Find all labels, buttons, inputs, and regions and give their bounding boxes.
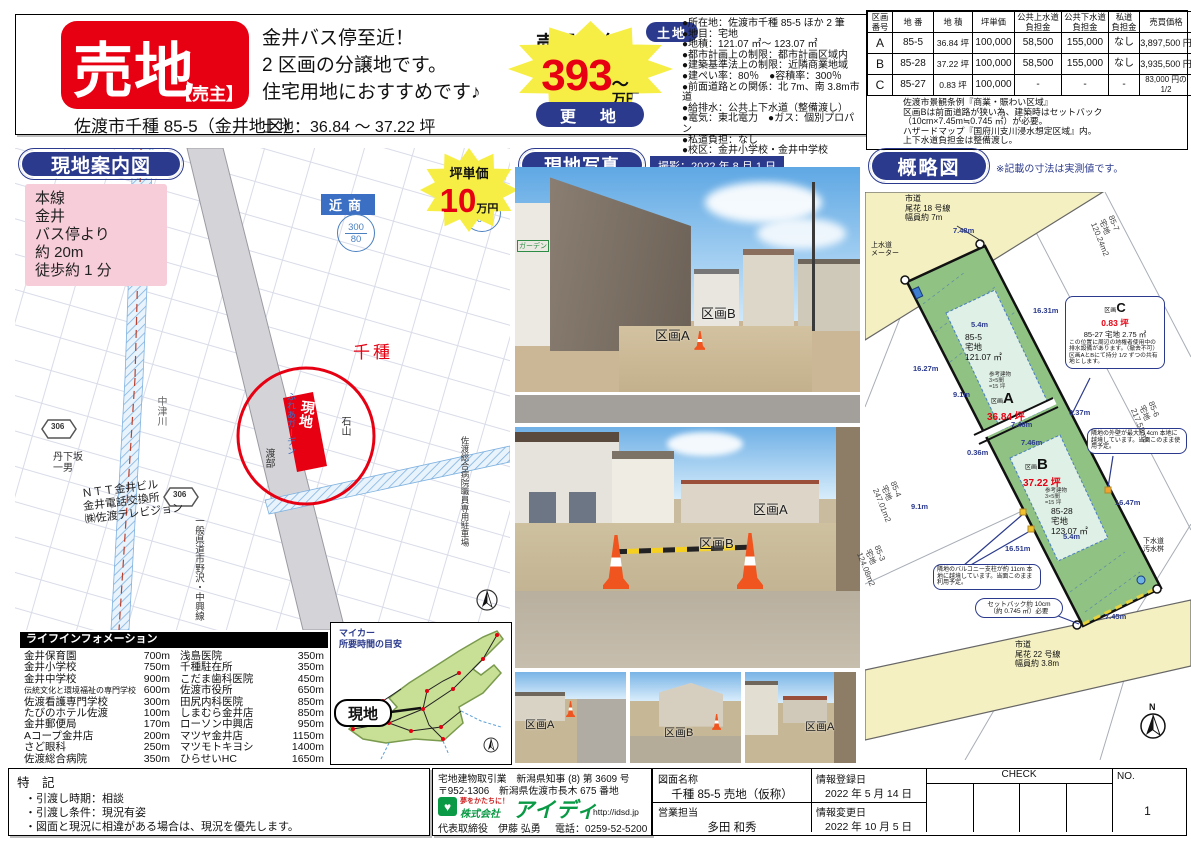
map-name-tange: 丹下坂 一男	[53, 452, 83, 474]
registered-date-cell: 情報登録日 2022 年 5 月 14 日	[811, 769, 927, 803]
cell: 36.84 坪	[934, 33, 973, 54]
cell: B	[868, 54, 893, 75]
document-info-table: 図面名称 千種 85-5 売地（仮称） 営業担当 多田 和秀 情報登録日 202…	[652, 768, 1187, 836]
cell: -	[1015, 75, 1062, 96]
special-notes-list: ・引渡し時期：相談 ・引渡し条件：現況有姿 ・図面と現況に相違がある場合は、現況…	[9, 791, 429, 834]
number-label: NO.	[1112, 769, 1183, 782]
land-details-list: ●所在地：佐渡市千種 85-5 ほか 2 筆 ●地目：宅地 ●地積：121.07…	[682, 19, 864, 157]
poi-name: マツモトキヨシ	[180, 742, 254, 753]
detail-item: ●前面道路との関係：北 7m、南 3.8m市道	[682, 83, 864, 104]
site-photo-1: ガーデン 区画A 区画B	[515, 167, 860, 423]
parcel-a-tsubo: 36.84 坪	[987, 408, 1025, 423]
col-header: 地 番	[893, 12, 934, 33]
col-header: 坪単価	[973, 12, 1015, 33]
parcel-tag-small: 区画	[991, 399, 1003, 405]
detail-item: ●所在地：佐渡市千種 85-5 ほか 2 筆	[682, 19, 864, 30]
col-header: 売買価格	[1140, 12, 1191, 33]
phone-number: 電話：0259-52-5200	[555, 820, 647, 835]
note-item: ・引渡し時期：相談	[25, 792, 429, 806]
parcel-b-reference: 参考建物 3×5間 =15 坪	[1045, 488, 1067, 506]
detail-item: ●電気：東北電力 ●ガス：個別プロパン	[682, 114, 864, 135]
road-surface	[577, 699, 626, 763]
road-area-bottom	[865, 600, 1191, 740]
map-name-ishiyama: 石山	[337, 416, 352, 436]
check-divider	[1019, 783, 1020, 832]
price-table-header-row: 区画 番号 地 番 地 積 坪単価 公共上水道 負担金 公共下水道 負担金 私道…	[868, 12, 1191, 33]
poi-distance: 350m	[144, 754, 170, 765]
cell: 100,000	[973, 75, 1015, 96]
company-prefix: 株式会社	[460, 805, 500, 820]
parcel-letter: C	[1116, 300, 1125, 315]
cell: C	[868, 75, 893, 96]
special-notes-title: 特 記	[9, 769, 429, 791]
site-photo-2: 区画A 区画B	[515, 427, 860, 668]
zoning-ratio-circle: 300 80	[337, 214, 375, 252]
traffic-cone	[566, 701, 575, 717]
updated-date-value: 2022 年 10 月 5 日	[811, 819, 926, 834]
registered-date-value: 2022 年 5 月 14 日	[811, 786, 926, 801]
road-surface	[515, 392, 860, 423]
dimension-label: 9.1m	[953, 390, 970, 399]
poi-name: 佐渡総合病院	[24, 754, 87, 765]
unit-price-number: 10	[440, 182, 477, 220]
parcel-a-tag: 区画A	[991, 390, 1014, 408]
dimension-label: 16.31m	[1033, 306, 1058, 315]
vacant-lot-ground	[515, 523, 836, 595]
route-number: 306	[173, 490, 186, 499]
dimension-label: 7.48m	[953, 226, 974, 235]
col-header: 区画 番号	[868, 12, 893, 33]
cell: なし	[1109, 54, 1140, 75]
dimension-label: 0.36m	[967, 448, 988, 457]
price-table: 区画 番号 地 番 地 積 坪単価 公共上水道 負担金 公共下水道 負担金 私道…	[867, 11, 1191, 96]
lot-b-photo-label: 区画B	[701, 303, 736, 322]
road-top-label: 市道 尾花 18 号線 幅員約 7m	[905, 194, 950, 223]
catch-line-2: 2 区画の分譲地です。	[262, 52, 481, 79]
sketch-note: ※記載の寸法は実測値です。	[996, 160, 1123, 175]
catch-line-3: 住宅用地におすすめです♪	[262, 79, 481, 106]
dimension-label: 16.47m	[1115, 498, 1140, 507]
col-header: 公共下水道 負担金	[1062, 12, 1109, 33]
dimension-label: 16.27m	[913, 364, 938, 373]
note-item: ・図面と現況に相違がある場合は、現況を優先します。	[25, 820, 429, 834]
detail-item: ●建ぺい率：80％ ●容積率：300％	[682, 72, 864, 83]
cell: 3,935,500 円	[1140, 54, 1191, 75]
unit-price-caption: 坪単価	[449, 163, 488, 182]
cell: -	[1062, 75, 1109, 96]
registered-date-label: 情報登録日	[811, 769, 926, 786]
site-photo-small-1: 区画A	[515, 672, 626, 763]
col-header: 公共上水道 負担金	[1015, 12, 1062, 33]
note-item: ・引渡し条件：現況有姿	[25, 806, 429, 820]
lot-label: 区画A	[805, 718, 834, 734]
number-cell: NO. 1	[1112, 769, 1183, 832]
life-info-left-column: 金井保育園700m 金井小学校750m 金井中学校900m 伝統文化と環境福祉の…	[24, 651, 170, 765]
sales-rep-label: 営業担当	[653, 802, 811, 819]
lot-label: 区画A	[525, 716, 554, 732]
dimension-label: 7.45m	[1105, 612, 1126, 621]
setback-callout: セットバック約 10cm （約 0.745 ㎡）必要	[975, 598, 1063, 618]
poi-name: さど眼科	[24, 742, 66, 753]
price-table-notes: 佐渡市景観条例『商業・賑わい区域』 区画Bは前面道路が狭い為、建築時はセットバッ…	[867, 96, 1187, 149]
price-number: 393	[541, 51, 611, 101]
check-divider	[973, 783, 974, 832]
utility-pole	[812, 182, 815, 330]
title-banner: 売地 【売主】	[61, 21, 249, 109]
check-divider	[1066, 783, 1067, 832]
compass	[1141, 714, 1165, 738]
header-box: 売地 【売主】 佐渡市千種 85-5（金井地区） 金井バス停至近！ 2 区画の分…	[15, 14, 867, 135]
vacant-lot-ground	[619, 326, 812, 393]
life-info-right-column: 浅島医院350m 千種駐在所350m こだま歯科医院450m 佐渡市役所650m…	[180, 651, 324, 765]
cell: なし	[1109, 33, 1140, 54]
road-surface	[515, 591, 860, 668]
poi-distance: 1400m	[292, 742, 324, 753]
garden-sign: ガーデン	[517, 240, 549, 252]
company-box: 宅地建物取引業 新潟県知事 (8) 第 3609 号 〒952-1306 新潟県…	[432, 768, 652, 836]
parcel-c-tsubo: 0.83 坪	[1069, 317, 1161, 329]
river-name-label: 中津川	[153, 396, 168, 426]
parcel-b-tag: 区画B	[1025, 456, 1048, 474]
sales-rep-cell: 営業担当 多田 和秀	[653, 802, 812, 832]
photo-building	[798, 259, 860, 331]
site-bubble: 現地	[334, 699, 392, 727]
poi-distance: 600m	[144, 685, 170, 696]
photo-building	[834, 672, 856, 763]
cell: 155,000	[1062, 54, 1109, 75]
town-name-label: 千種	[353, 338, 393, 363]
parcel-c-note: この位置に周辺の地権者使用中の排水設備があります。（撤去不可）区画AとBにて持分…	[1069, 340, 1161, 366]
photo-building: ガーデン	[515, 203, 553, 346]
cell: 58,500	[1015, 54, 1062, 75]
poi-name: ひらせいHC	[180, 754, 237, 765]
table-row: A 85-5 36.84 坪 100,000 58,500 155,000 なし…	[868, 33, 1191, 54]
seller-tag: 【売主】	[175, 80, 243, 105]
catch-line-1: 金井バス停至近！	[262, 25, 481, 52]
flyer-page: 売地 【売主】 佐渡市千種 85-5（金井地区） 金井バス停至近！ 2 区画の分…	[0, 0, 1191, 842]
guide-map-title: 現地案内図	[20, 150, 182, 178]
route-number: 306	[51, 422, 64, 431]
parcel-b-tsubo: 37.22 坪	[1023, 474, 1061, 489]
sketch-section-title: 概略図	[870, 150, 988, 182]
cell: 3,897,500 円	[1140, 33, 1191, 54]
sketch-plan: 市道 尾花 18 号線 幅員約 7m 市道 尾花 22 号線 幅員約 3.8m …	[865, 192, 1191, 760]
poi-distance: 250m	[144, 742, 170, 753]
poi-name: 佐渡市役所	[180, 685, 233, 696]
check-cell: CHECK	[926, 769, 1113, 832]
cell: 58,500	[1015, 33, 1062, 54]
cloud	[667, 432, 743, 456]
lot-label: 区画B	[664, 724, 693, 740]
sewer-manhole-icon	[1137, 576, 1145, 584]
cell: 155,000	[1062, 33, 1109, 54]
dimension-label: 9.1m	[911, 502, 928, 511]
lot-a-photo-label: 区画A	[753, 499, 788, 518]
sales-rep-value: 多田 和秀	[653, 819, 811, 835]
representative-name: 代表取締役 伊藤 弘勇	[438, 820, 541, 835]
parcel-tag-small: 区画	[1104, 308, 1116, 314]
company-url: http://idsd.jp	[593, 807, 639, 817]
cloud	[705, 182, 822, 223]
cell: 85-5	[893, 33, 934, 54]
dimension-label: 7.46m	[1021, 438, 1042, 447]
land-area-range: 土地：36.84 ～ 37.22 坪	[262, 113, 435, 137]
site-photo-small-3: 区画A	[745, 672, 856, 763]
cell: 100,000	[973, 54, 1015, 75]
price-table-box: 区画 番号 地 番 地 積 坪単価 公共上水道 負担金 公共下水道 負担金 私道…	[866, 10, 1188, 150]
parcel-c-callout: 区画C 0.83 坪 85-27 宅地 2.75 ㎡ この位置に周辺の地権者使用…	[1065, 296, 1165, 369]
dimension-label: 16.51m	[1005, 544, 1030, 553]
life-info-panel: ライフインフォメーション 金井保育園700m 金井小学校750m 金井中学校90…	[20, 632, 328, 763]
catchphrase: 金井バス停至近！ 2 区画の分譲地です。 住宅用地におすすめです♪	[262, 25, 481, 106]
drawing-name-label: 図面名称	[653, 769, 811, 786]
poi-name: 金井中学校	[24, 674, 77, 685]
company-logo-icon: ♥	[438, 797, 457, 816]
parcel-b-lot-info: 85-28 宅地 123.07 ㎡	[1051, 506, 1088, 536]
drawing-name-cell: 図面名称 千種 85-5 売地（仮称）	[653, 769, 812, 803]
compass-n-label: N	[1149, 702, 1156, 712]
number-value: 1	[1112, 804, 1183, 818]
cell: A	[868, 33, 893, 54]
map-name-watabe: 渡部	[261, 448, 276, 468]
access-info-box: 本線 金井 バス停より 約 20m 徒歩約 1 分	[25, 184, 167, 286]
dimension-label: 5.4m	[971, 320, 988, 329]
photo-building	[681, 480, 819, 527]
updated-date-cell: 情報変更日 2022 年 10 月 5 日	[811, 802, 927, 832]
balcony-encroachment-callout: 隣地のバルコニー支柱が約 11cm 本地に越境しています。当面このまま利用予定。	[933, 564, 1041, 590]
parcel-tag-small: 区画	[1025, 465, 1037, 471]
dimension-label: 0.37m	[1069, 408, 1090, 417]
drawing-name-value: 千種 85-5 売地（仮称）	[653, 786, 811, 802]
cell: 0.83 坪	[934, 75, 973, 96]
drive-time-map: マイカー 所要時間の目安 現地	[330, 622, 512, 765]
status-badge: 更 地	[536, 102, 644, 127]
zoning-label: 近商	[321, 194, 375, 215]
col-header: 地 積	[934, 12, 973, 33]
cell: 100,000	[973, 33, 1015, 54]
life-info-title: ライフインフォメーション	[20, 632, 328, 648]
drive-map-title: マイカー 所要時間の目安	[339, 628, 402, 650]
poi-name: 伝統文化と環境福祉の専門学校	[24, 685, 136, 696]
prefecture-road-label: 一般県道市野沢・中興線	[191, 516, 205, 621]
parcel-letter: A	[1003, 390, 1014, 407]
floor-area-ratio: 300	[345, 222, 367, 234]
cell: 85-27	[893, 75, 934, 96]
cell: 37.22 坪	[934, 54, 973, 75]
check-label: CHECK	[926, 769, 1112, 784]
parcel-a-reference: 参考建物 3×5間 =15 坪	[989, 372, 1011, 390]
hospital-parking-label: 佐渡総合病院職員専用駐車場	[459, 436, 471, 547]
parcel-c-lot-info: 85-27 宅地 2.75 ㎡	[1069, 329, 1161, 340]
price-tilde: ～	[612, 78, 629, 92]
sewer-label: 下水道 汚水桝	[1143, 538, 1164, 554]
col-header: 私道 負担金	[1109, 12, 1140, 33]
photo-building	[745, 681, 778, 735]
cloud	[757, 218, 847, 249]
cell: 83,000 円の 1/2	[1140, 75, 1191, 96]
updated-date-label: 情報変更日	[811, 802, 926, 819]
lot-a-photo-label: 区画A	[655, 325, 690, 344]
site-photo-small-2: 区画B	[630, 672, 741, 763]
mini-compass	[484, 738, 498, 752]
table-row: C 85-27 0.83 坪 100,000 - - - 83,000 円の 1…	[868, 75, 1191, 96]
map-name-garden: ふれあガーデン	[285, 392, 298, 455]
parcel-letter: B	[1037, 456, 1048, 473]
guide-map-section: 現地案内図 本線 金井 バス停より 約 20m 徒歩約 1 分 近商 300 8…	[15, 148, 510, 630]
water-meter-label: 上水道 メーター	[871, 242, 899, 258]
lot-b-photo-label: 区画B	[699, 533, 734, 552]
road-bottom-label: 市道 尾花 22 号線 幅員約 3.8m	[1015, 640, 1060, 669]
note-line: 上下水道負担金は整備渡し。	[903, 136, 1183, 146]
cell: 85-28	[893, 54, 934, 75]
table-row: B 85-28 37.22 坪 100,000 58,500 155,000 な…	[868, 54, 1191, 75]
poi-distance: 1650m	[292, 754, 324, 765]
parcel-a-lot-info: 85-5 宅地 121.07 ㎡	[965, 332, 1002, 362]
poi-distance: 650m	[298, 685, 324, 696]
building-coverage-ratio: 80	[351, 234, 362, 245]
photo-building	[743, 249, 795, 332]
special-notes-box: 特 記 ・引渡し時期：相談 ・引渡し条件：現況有姿 ・図面と現況に相違がある場合…	[8, 768, 430, 836]
cell: -	[1109, 75, 1140, 96]
